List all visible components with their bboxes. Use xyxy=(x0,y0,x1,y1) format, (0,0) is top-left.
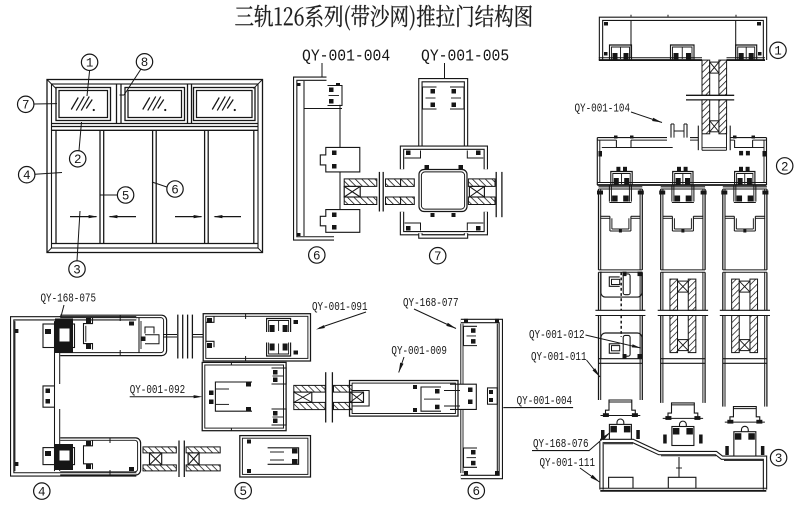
svg-text:6: 6 xyxy=(473,485,481,499)
svg-text:QY-001-004: QY-001-004 xyxy=(302,48,390,67)
svg-text:QY-001-012: QY-001-012 xyxy=(529,328,585,342)
svg-text:1: 1 xyxy=(86,57,94,71)
svg-text:2: 2 xyxy=(781,160,789,174)
svg-text:3: 3 xyxy=(775,452,783,466)
svg-text:5: 5 xyxy=(239,485,247,499)
svg-text:QY-001-011: QY-001-011 xyxy=(531,350,587,364)
svg-text:8: 8 xyxy=(141,56,149,70)
svg-text:QY-001-005: QY-001-005 xyxy=(421,48,509,67)
svg-text:QY-001-009: QY-001-009 xyxy=(391,344,447,358)
svg-text:6: 6 xyxy=(171,183,179,197)
svg-text:4: 4 xyxy=(23,169,31,183)
svg-text:QY-001-004: QY-001-004 xyxy=(517,394,573,408)
svg-text:7: 7 xyxy=(434,250,442,264)
svg-text:2: 2 xyxy=(74,153,82,167)
svg-text:QY-168-077: QY-168-077 xyxy=(403,296,459,310)
svg-text:7: 7 xyxy=(22,99,30,113)
svg-text:QY-168-075: QY-168-075 xyxy=(41,292,97,306)
svg-text:QY-001-111: QY-001-111 xyxy=(540,456,596,470)
svg-text:4: 4 xyxy=(38,486,46,500)
svg-text:QY-001-104: QY-001-104 xyxy=(575,102,631,116)
svg-text:6: 6 xyxy=(313,249,321,263)
svg-text:1: 1 xyxy=(774,45,782,59)
svg-text:QY-001-092: QY-001-092 xyxy=(130,383,186,397)
svg-text:3: 3 xyxy=(73,263,81,277)
svg-text:QY-168-076: QY-168-076 xyxy=(533,437,589,451)
svg-text:5: 5 xyxy=(122,189,130,203)
svg-text:QY-001-091: QY-001-091 xyxy=(312,300,368,314)
